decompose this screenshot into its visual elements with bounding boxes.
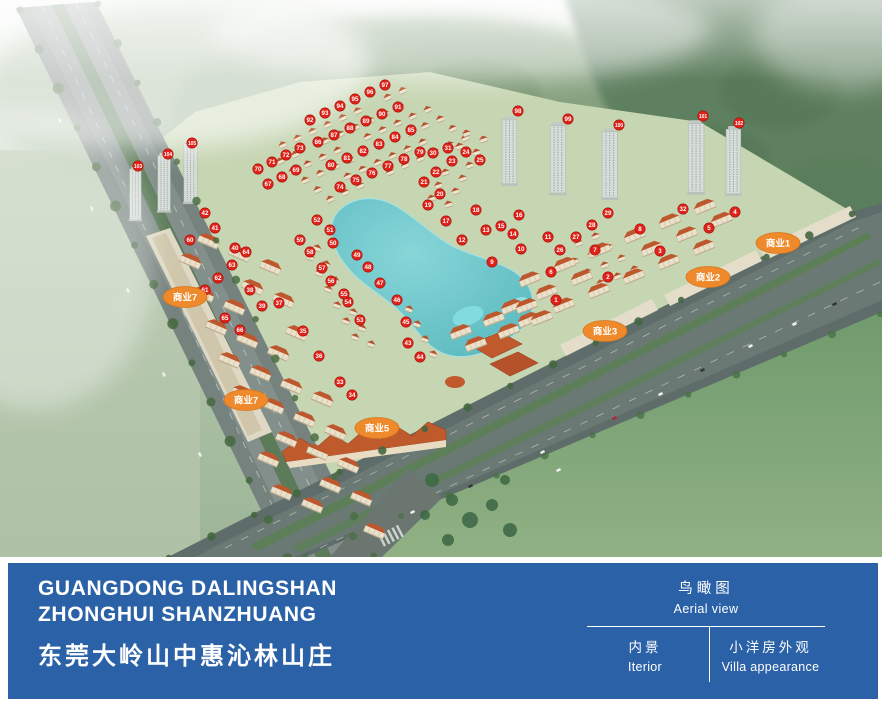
svg-text:67: 67 [265, 181, 272, 188]
unit-marker: 48 [363, 262, 373, 272]
svg-text:96: 96 [367, 89, 374, 96]
unit-marker: 82 [358, 146, 368, 156]
svg-text:44: 44 [417, 354, 424, 361]
svg-text:52: 52 [314, 217, 321, 224]
svg-text:88: 88 [347, 125, 354, 132]
svg-text:51: 51 [327, 227, 334, 234]
project-title-en-line1: GUANGDONG DALINGSHAN [38, 576, 337, 602]
unit-marker: 68 [277, 172, 287, 182]
svg-text:30: 30 [430, 150, 437, 157]
svg-text:7: 7 [593, 247, 597, 254]
unit-marker: 36 [314, 351, 324, 361]
svg-text:商业7: 商业7 [173, 291, 197, 303]
unit-marker: 98 [513, 106, 523, 116]
commercial-label: 商业3 [583, 321, 627, 342]
unit-marker: 34 [347, 390, 357, 400]
svg-text:32: 32 [680, 206, 687, 213]
svg-text:86: 86 [315, 139, 322, 146]
svg-text:35: 35 [300, 328, 307, 335]
unit-marker: 102 [734, 118, 744, 128]
svg-text:15: 15 [498, 223, 505, 230]
svg-text:39: 39 [259, 303, 266, 310]
unit-marker: 41 [210, 223, 220, 233]
svg-text:29: 29 [605, 210, 612, 217]
unit-marker: 79 [415, 147, 425, 157]
unit-marker: 20 [435, 189, 445, 199]
svg-text:26: 26 [557, 247, 564, 254]
svg-text:10: 10 [518, 246, 525, 253]
svg-text:23: 23 [449, 158, 456, 165]
unit-marker: 56 [326, 276, 336, 286]
unit-marker: 13 [481, 225, 491, 235]
unit-marker: 58 [305, 247, 315, 257]
unit-marker: 29 [603, 208, 613, 218]
svg-text:25: 25 [477, 157, 484, 164]
project-title-en-line2: ZHONGHUI SHANZHUANG [38, 602, 337, 628]
unit-marker: 86 [313, 137, 323, 147]
svg-text:105: 105 [188, 141, 197, 147]
unit-marker: 25 [475, 155, 485, 165]
unit-marker: 30 [428, 148, 438, 158]
svg-text:28: 28 [589, 222, 596, 229]
svg-text:90: 90 [379, 111, 386, 118]
unit-marker: 74 [335, 182, 345, 192]
svg-text:48: 48 [365, 264, 372, 271]
svg-text:68: 68 [279, 174, 286, 181]
nav-item-interior[interactable]: 内景 Iterior [581, 627, 710, 682]
svg-text:22: 22 [433, 169, 440, 176]
svg-text:65: 65 [222, 315, 229, 322]
svg-text:102: 102 [735, 121, 744, 127]
svg-text:55: 55 [341, 291, 348, 298]
svg-text:商业7: 商业7 [234, 394, 258, 406]
commercial-label: 商业7 [163, 287, 207, 308]
unit-marker: 69 [291, 165, 301, 175]
svg-text:49: 49 [354, 252, 361, 259]
svg-text:84: 84 [392, 134, 399, 141]
unit-marker: 88 [345, 123, 355, 133]
svg-text:商业1: 商业1 [766, 237, 791, 249]
svg-text:50: 50 [330, 240, 337, 247]
svg-text:5: 5 [707, 225, 711, 232]
svg-text:38: 38 [247, 287, 254, 294]
unit-marker: 51 [325, 225, 335, 235]
unit-marker: 8 [635, 224, 645, 234]
unit-marker: 45 [401, 317, 411, 327]
footer-bar: GUANGDONG DALINGSHAN ZHONGHUI SHANZHUANG… [8, 563, 878, 699]
svg-text:41: 41 [212, 225, 219, 232]
unit-marker: 10 [516, 244, 526, 254]
svg-text:27: 27 [573, 234, 580, 241]
svg-text:79: 79 [417, 149, 424, 156]
unit-marker: 72 [281, 150, 291, 160]
nav-interior-label-en: Iterior [581, 660, 709, 674]
unit-marker: 3 [655, 246, 665, 256]
unit-marker: 67 [263, 179, 273, 189]
unit-marker: 90 [377, 109, 387, 119]
commercial-label: 商业1 [756, 233, 800, 254]
svg-text:6: 6 [549, 269, 553, 276]
svg-text:12: 12 [459, 237, 466, 244]
svg-text:31: 31 [445, 145, 452, 152]
unit-marker: 94 [335, 101, 345, 111]
svg-text:21: 21 [421, 179, 428, 186]
nav-villa-label-en: Villa appearance [710, 660, 831, 674]
svg-text:74: 74 [337, 184, 344, 191]
unit-marker: 92 [305, 115, 315, 125]
svg-text:92: 92 [307, 117, 314, 124]
unit-marker: 95 [350, 94, 360, 104]
project-title-cn: 东莞大岭山中惠沁林山庄 [38, 636, 337, 671]
svg-text:66: 66 [237, 327, 244, 334]
unit-marker: 28 [587, 220, 597, 230]
unit-marker: 37 [274, 298, 284, 308]
unit-marker: 12 [457, 235, 467, 245]
unit-marker: 46 [392, 295, 402, 305]
svg-text:59: 59 [297, 237, 304, 244]
unit-marker: 44 [415, 352, 425, 362]
svg-text:商业3: 商业3 [593, 325, 617, 337]
unit-marker: 53 [355, 315, 365, 325]
svg-text:37: 37 [276, 300, 283, 307]
unit-marker: 5 [704, 223, 714, 233]
unit-marker: 21 [419, 177, 429, 187]
svg-text:1: 1 [554, 297, 558, 304]
svg-text:97: 97 [382, 82, 389, 89]
unit-marker: 57 [317, 263, 327, 273]
svg-text:商业5: 商业5 [365, 422, 390, 434]
unit-marker: 78 [399, 154, 409, 164]
unit-marker: 52 [312, 215, 322, 225]
svg-text:19: 19 [425, 202, 432, 209]
unit-marker: 7 [590, 245, 600, 255]
unit-marker: 19 [423, 200, 433, 210]
unit-marker: 91 [393, 102, 403, 112]
unit-marker: 101 [698, 111, 708, 121]
svg-text:2: 2 [606, 274, 610, 281]
unit-marker: 70 [253, 164, 263, 174]
unit-marker: 26 [555, 245, 565, 255]
svg-text:42: 42 [202, 210, 209, 217]
unit-marker: 104 [163, 149, 173, 159]
svg-text:57: 57 [319, 265, 326, 272]
unit-marker: 38 [245, 285, 255, 295]
unit-marker: 16 [514, 210, 524, 220]
unit-marker: 100 [614, 120, 624, 130]
unit-marker: 27 [571, 232, 581, 242]
commercial-label: 商业7 [224, 390, 268, 411]
unit-marker: 23 [447, 156, 457, 166]
unit-marker: 39 [257, 301, 267, 311]
unit-marker: 89 [361, 116, 371, 126]
unit-marker: 11 [543, 232, 553, 242]
svg-text:24: 24 [463, 149, 470, 156]
svg-text:45: 45 [403, 319, 410, 326]
unit-marker: 31 [443, 143, 453, 153]
unit-marker: 71 [267, 157, 277, 167]
commercial-label: 商业5 [355, 418, 399, 439]
nav-active-label-cn: 鸟瞰图 [581, 577, 831, 598]
unit-marker: 76 [367, 168, 377, 178]
svg-text:76: 76 [369, 170, 376, 177]
svg-text:80: 80 [328, 162, 335, 169]
svg-text:100: 100 [615, 123, 624, 129]
unit-marker: 43 [403, 338, 413, 348]
svg-text:9: 9 [490, 259, 494, 266]
unit-marker: 17 [441, 216, 451, 226]
unit-marker: 65 [220, 313, 230, 323]
svg-text:99: 99 [565, 116, 572, 123]
unit-marker: 24 [461, 147, 471, 157]
svg-text:93: 93 [322, 110, 329, 117]
unit-marker: 14 [508, 229, 518, 239]
unit-marker: 62 [213, 273, 223, 283]
unit-marker: 73 [295, 143, 305, 153]
svg-text:63: 63 [229, 262, 236, 269]
unit-marker: 55 [339, 289, 349, 299]
svg-text:78: 78 [401, 156, 408, 163]
svg-text:8: 8 [638, 226, 642, 233]
svg-text:18: 18 [473, 207, 480, 214]
nav-active-aerial-view[interactable]: 鸟瞰图 Aerial view [581, 577, 831, 616]
unit-marker: 64 [241, 247, 251, 257]
svg-text:16: 16 [516, 212, 523, 219]
svg-text:85: 85 [408, 127, 415, 134]
svg-text:98: 98 [515, 108, 522, 115]
commercial-label: 商业2 [686, 267, 730, 288]
svg-text:81: 81 [344, 155, 351, 162]
svg-text:77: 77 [385, 163, 392, 170]
unit-marker: 18 [471, 205, 481, 215]
nav-item-villa-appearance[interactable]: 小洋房外观 Villa appearance [710, 627, 831, 682]
svg-text:43: 43 [405, 340, 412, 347]
unit-marker: 35 [298, 326, 308, 336]
unit-marker: 83 [374, 139, 384, 149]
unit-marker: 59 [295, 235, 305, 245]
svg-text:103: 103 [134, 164, 143, 170]
aerial-view-image: 1234567891011121314151617181920212223242… [0, 0, 882, 557]
unit-marker: 93 [320, 108, 330, 118]
unit-marker: 33 [335, 377, 345, 387]
svg-text:商业2: 商业2 [696, 271, 720, 283]
svg-text:75: 75 [353, 177, 360, 184]
svg-text:94: 94 [337, 103, 344, 110]
svg-text:58: 58 [307, 249, 314, 256]
project-title-block: GUANGDONG DALINGSHAN ZHONGHUI SHANZHUANG… [38, 576, 337, 671]
svg-text:13: 13 [483, 227, 490, 234]
svg-text:69: 69 [293, 167, 300, 174]
svg-text:87: 87 [331, 132, 338, 139]
unit-marker: 6 [546, 267, 556, 277]
svg-text:104: 104 [164, 152, 173, 158]
unit-marker: 99 [563, 114, 573, 124]
svg-text:56: 56 [328, 278, 335, 285]
unit-marker: 96 [365, 87, 375, 97]
svg-text:11: 11 [545, 234, 552, 241]
unit-marker: 1 [551, 295, 561, 305]
unit-marker: 85 [406, 125, 416, 135]
svg-text:72: 72 [283, 152, 290, 159]
unit-marker: 42 [200, 208, 210, 218]
svg-text:91: 91 [395, 104, 402, 111]
svg-text:36: 36 [316, 353, 323, 360]
unit-marker: 2 [603, 272, 613, 282]
unit-marker: 50 [328, 238, 338, 248]
svg-text:95: 95 [352, 96, 359, 103]
svg-text:73: 73 [297, 145, 304, 152]
unit-marker: 103 [133, 161, 143, 171]
unit-marker: 63 [227, 260, 237, 270]
unit-marker: 80 [326, 160, 336, 170]
svg-text:40: 40 [232, 245, 239, 252]
unit-marker: 32 [678, 204, 688, 214]
unit-marker: 87 [329, 130, 339, 140]
svg-text:54: 54 [345, 299, 352, 306]
unit-marker: 47 [375, 278, 385, 288]
svg-text:60: 60 [187, 237, 194, 244]
svg-text:71: 71 [269, 159, 276, 166]
svg-text:64: 64 [243, 249, 250, 256]
unit-marker: 105 [187, 138, 197, 148]
unit-marker: 66 [235, 325, 245, 335]
svg-text:46: 46 [394, 297, 401, 304]
unit-marker: 40 [230, 243, 240, 253]
svg-text:82: 82 [360, 148, 367, 155]
nav-villa-label-cn: 小洋房外观 [710, 636, 831, 656]
svg-text:83: 83 [376, 141, 383, 148]
svg-text:34: 34 [349, 392, 356, 399]
unit-marker: 84 [390, 132, 400, 142]
svg-text:33: 33 [337, 379, 344, 386]
svg-text:89: 89 [363, 118, 370, 125]
svg-text:62: 62 [215, 275, 222, 282]
svg-text:4: 4 [733, 209, 737, 216]
view-nav: 鸟瞰图 Aerial view 内景 Iterior 小洋房外观 Villa a… [581, 577, 831, 682]
unit-marker: 97 [380, 80, 390, 90]
svg-text:14: 14 [510, 231, 517, 238]
unit-marker: 60 [185, 235, 195, 245]
nav-active-label-en: Aerial view [581, 602, 831, 616]
svg-text:20: 20 [437, 191, 444, 198]
unit-marker: 9 [487, 257, 497, 267]
svg-text:70: 70 [255, 166, 262, 173]
svg-text:3: 3 [658, 248, 662, 255]
svg-text:47: 47 [377, 280, 384, 287]
svg-text:101: 101 [699, 114, 708, 120]
svg-text:17: 17 [443, 218, 450, 225]
unit-marker: 22 [431, 167, 441, 177]
unit-marker: 49 [352, 250, 362, 260]
unit-marker: 75 [351, 175, 361, 185]
unit-marker: 4 [730, 207, 740, 217]
unit-marker: 77 [383, 161, 393, 171]
unit-marker: 81 [342, 153, 352, 163]
unit-marker: 15 [496, 221, 506, 231]
nav-interior-label-cn: 内景 [581, 636, 709, 656]
svg-text:53: 53 [357, 317, 364, 324]
